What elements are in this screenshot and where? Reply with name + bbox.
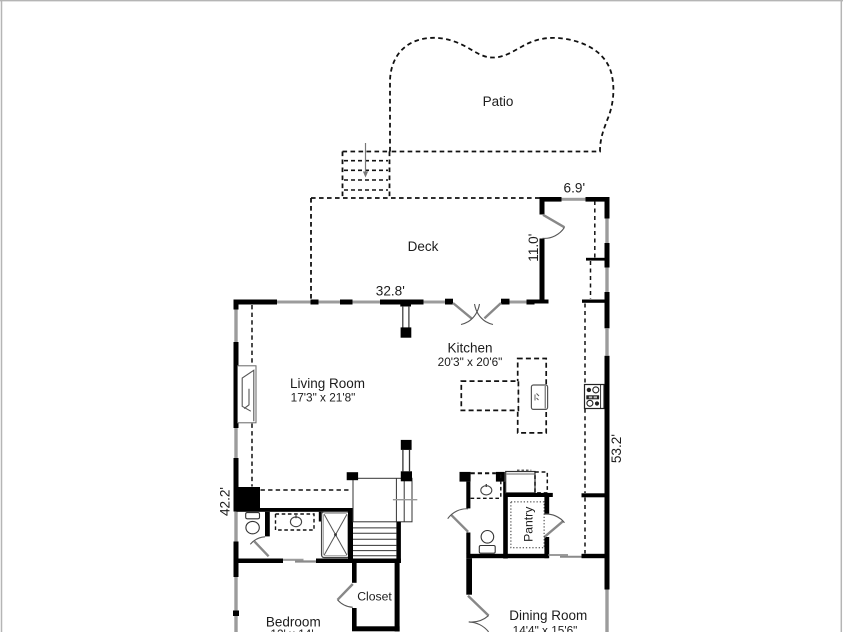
svg-text:Kitchen: Kitchen: [447, 341, 492, 356]
svg-text:53.2': 53.2': [609, 434, 624, 463]
svg-text:Dining Room: Dining Room: [509, 608, 587, 623]
svg-text:Living Room: Living Room: [290, 376, 365, 391]
svg-text:12' x 14': 12' x 14': [270, 627, 313, 632]
svg-text:42.2': 42.2': [217, 487, 232, 516]
svg-text:Closet: Closet: [357, 590, 392, 604]
svg-text:Deck: Deck: [408, 239, 439, 254]
svg-text:Pantry: Pantry: [521, 506, 535, 542]
svg-text:6.9': 6.9': [564, 181, 586, 196]
svg-text:14'4" x 15'6": 14'4" x 15'6": [513, 624, 578, 632]
svg-text:17'3" x 21'8": 17'3" x 21'8": [291, 391, 356, 405]
svg-text:20'3" x 20'6": 20'3" x 20'6": [438, 355, 503, 369]
svg-text:32.8': 32.8': [376, 283, 405, 298]
svg-text:11.0': 11.0': [526, 234, 541, 262]
svg-text:Patio: Patio: [483, 94, 514, 109]
